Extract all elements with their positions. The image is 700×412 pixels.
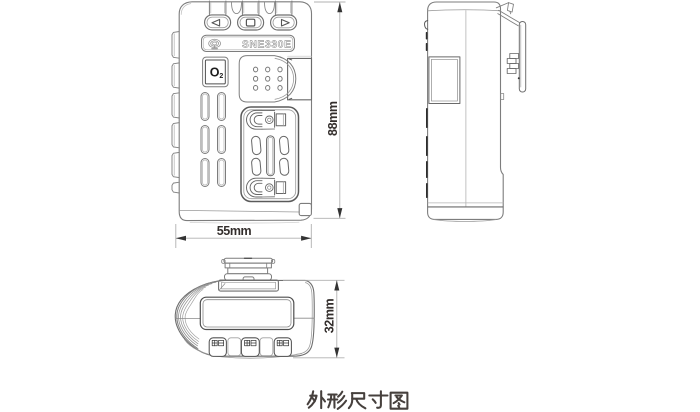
svg-text:32mm: 32mm — [322, 298, 336, 333]
svg-text:88mm: 88mm — [326, 101, 340, 136]
svg-text:O: O — [210, 65, 220, 79]
svg-text:2: 2 — [219, 73, 223, 80]
svg-text:55mm: 55mm — [217, 224, 252, 238]
svg-text:SNE330E: SNE330E — [242, 40, 292, 51]
